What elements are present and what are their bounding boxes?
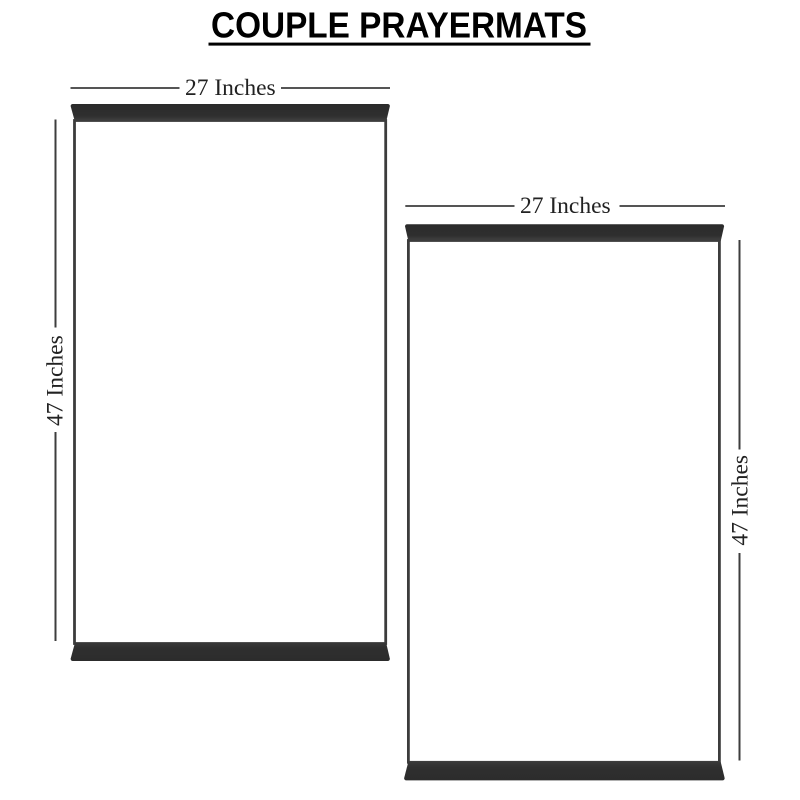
svg-text:27 Inches: 27 Inches	[520, 193, 611, 219]
svg-text:47 Inches: 47 Inches	[728, 455, 754, 546]
svg-text:47 Inches: 47 Inches	[43, 335, 69, 426]
svg-text:27 Inches: 27 Inches	[185, 75, 276, 101]
svg-text:COUPLE PRAYERMATS: COUPLE PRAYERMATS	[211, 5, 587, 46]
